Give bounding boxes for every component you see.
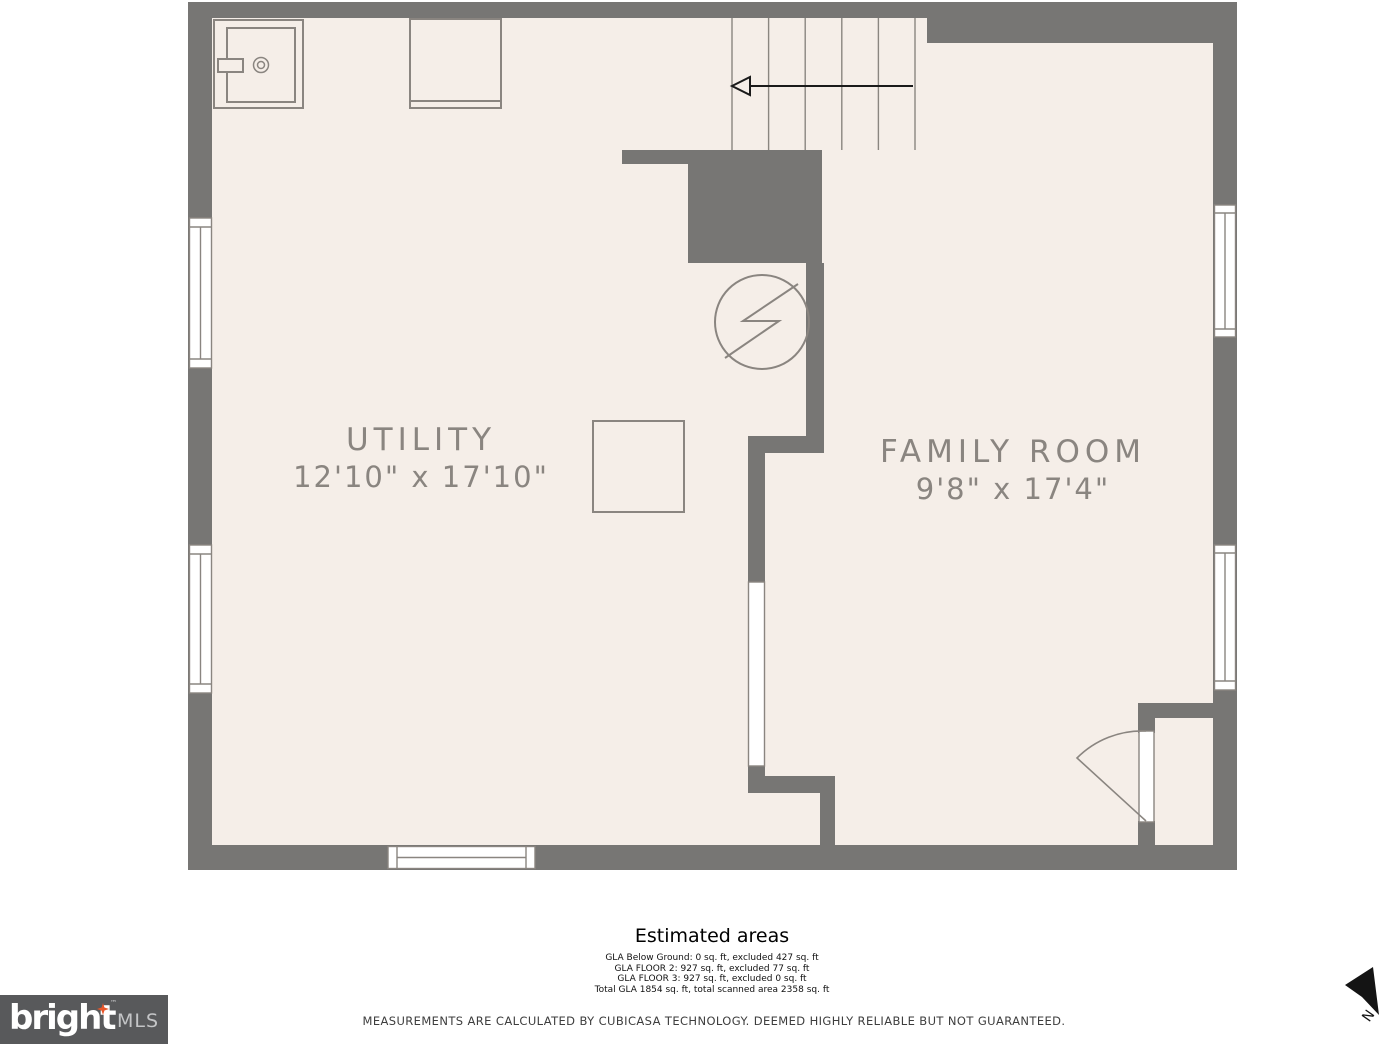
logo-suffix-text: MLS — [117, 1009, 159, 1033]
window-symbol-bottom — [388, 847, 535, 869]
window-symbol-left-1 — [190, 218, 212, 368]
gla-line: Total GLA 1854 sq. ft, total scanned are… — [512, 985, 912, 996]
room-name: UTILITY — [246, 421, 596, 459]
disclaimer-text: MEASUREMENTS ARE CALCULATED BY CUBICASA … — [324, 1014, 1104, 1028]
gla-line: GLA FLOOR 2: 927 sq. ft, excluded 77 sq.… — [512, 964, 912, 975]
floor-plan-drawing — [0, 0, 1387, 1044]
gla-line: GLA Below Ground: 0 sq. ft, excluded 427… — [512, 953, 912, 964]
estimated-areas: Estimated areas GLA Below Ground: 0 sq. … — [512, 924, 912, 995]
brightmls-logo: bright ™ MLS — [0, 995, 168, 1044]
window-symbol-left-2 — [190, 545, 212, 693]
room-dimensions: 9'8" x 17'4" — [838, 471, 1188, 507]
family-room-label: FAMILY ROOM 9'8" x 17'4" — [838, 433, 1188, 507]
room-name: FAMILY ROOM — [838, 433, 1188, 471]
utility-room-label: UTILITY 12'10" x 17'10" — [246, 421, 596, 495]
logo-trademark: ™ — [110, 999, 117, 1007]
window-symbol-right-2 — [1215, 545, 1236, 690]
floor-plan-page: UTILITY 12'10" x 17'10" FAMILY ROOM 9'8"… — [0, 0, 1387, 1044]
window-symbol-right-1 — [1215, 205, 1236, 337]
logo-star-icon — [97, 1003, 109, 1015]
window-symbol-interior — [749, 582, 765, 766]
room-dimensions: 12'10" x 17'10" — [246, 459, 596, 495]
gla-line: GLA FLOOR 3: 927 sq. ft, excluded 0 sq. … — [512, 974, 912, 985]
estimated-areas-title: Estimated areas — [512, 924, 912, 948]
